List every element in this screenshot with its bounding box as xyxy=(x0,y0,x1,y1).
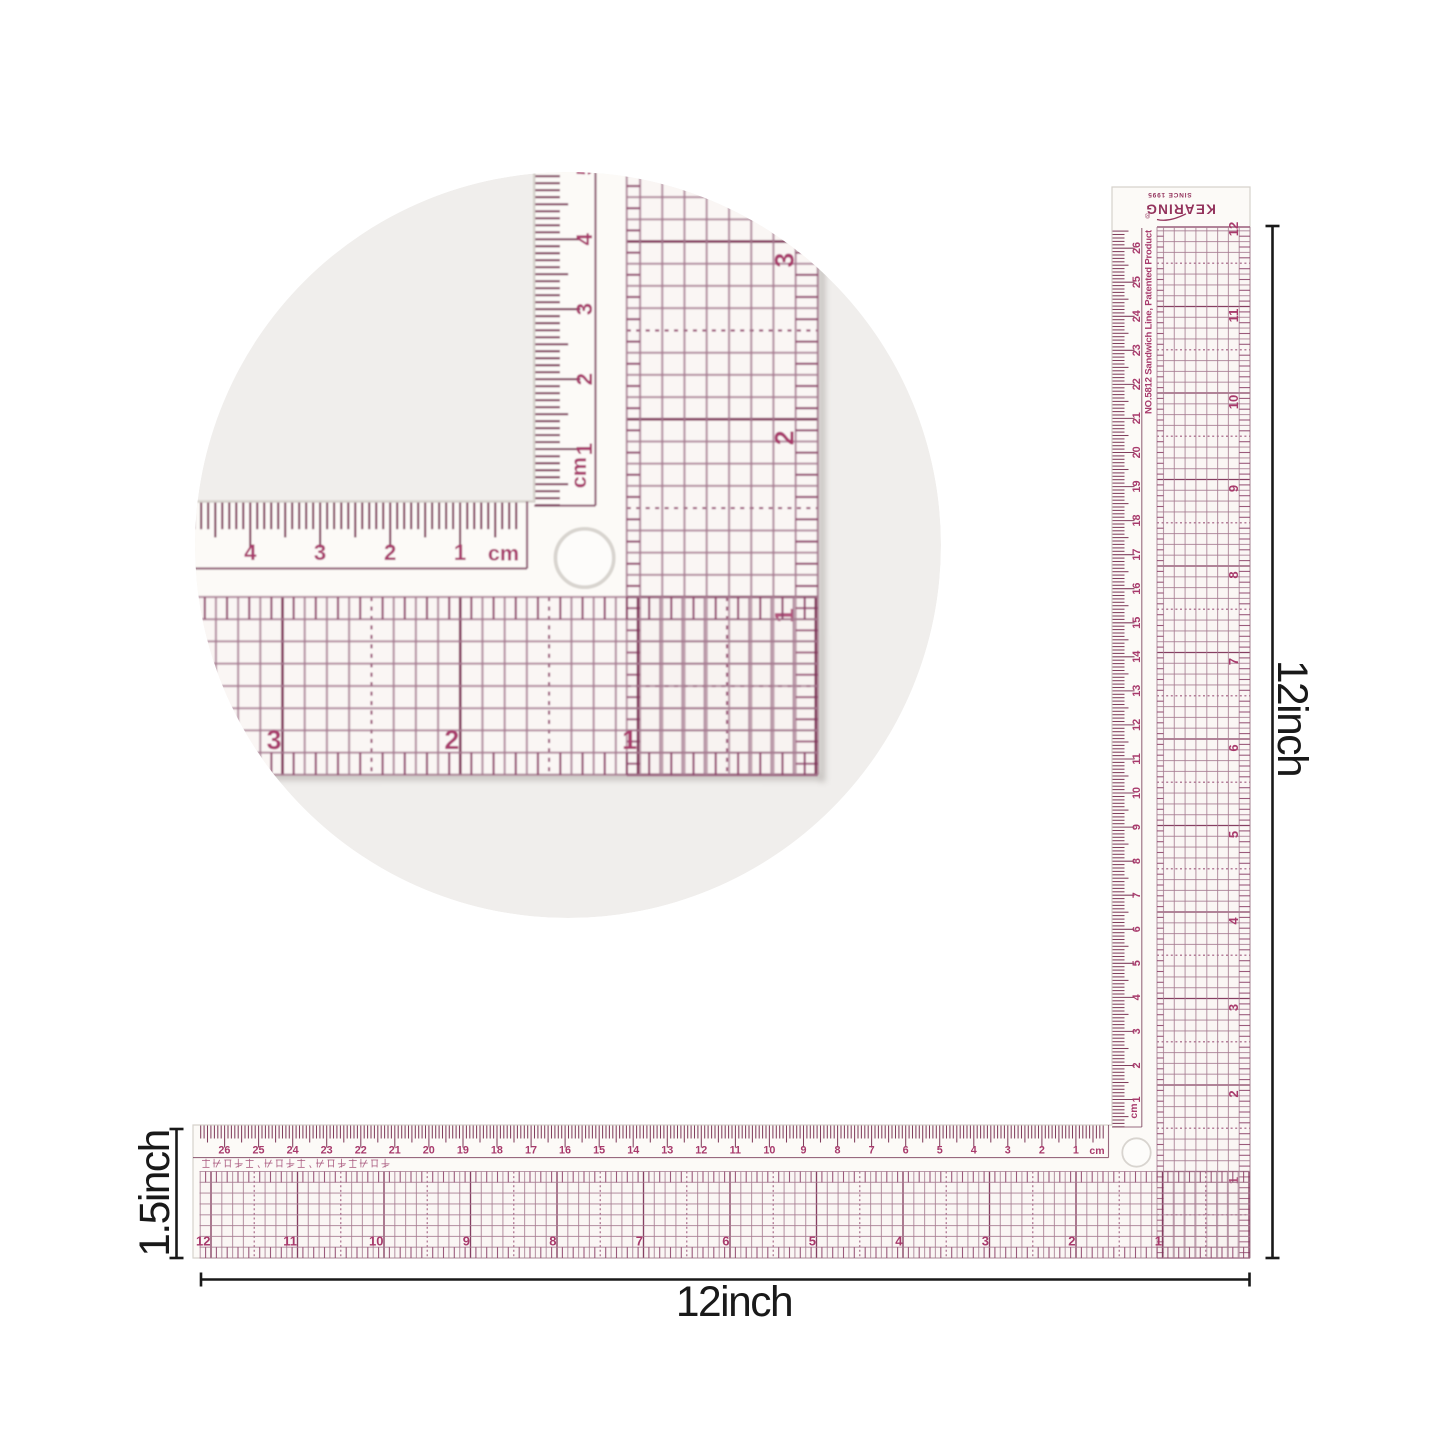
svg-text:12inch: 12inch xyxy=(676,1279,792,1326)
svg-text:1.5inch: 1.5inch xyxy=(132,1130,179,1257)
svg-text:12inch: 12inch xyxy=(1268,660,1315,776)
